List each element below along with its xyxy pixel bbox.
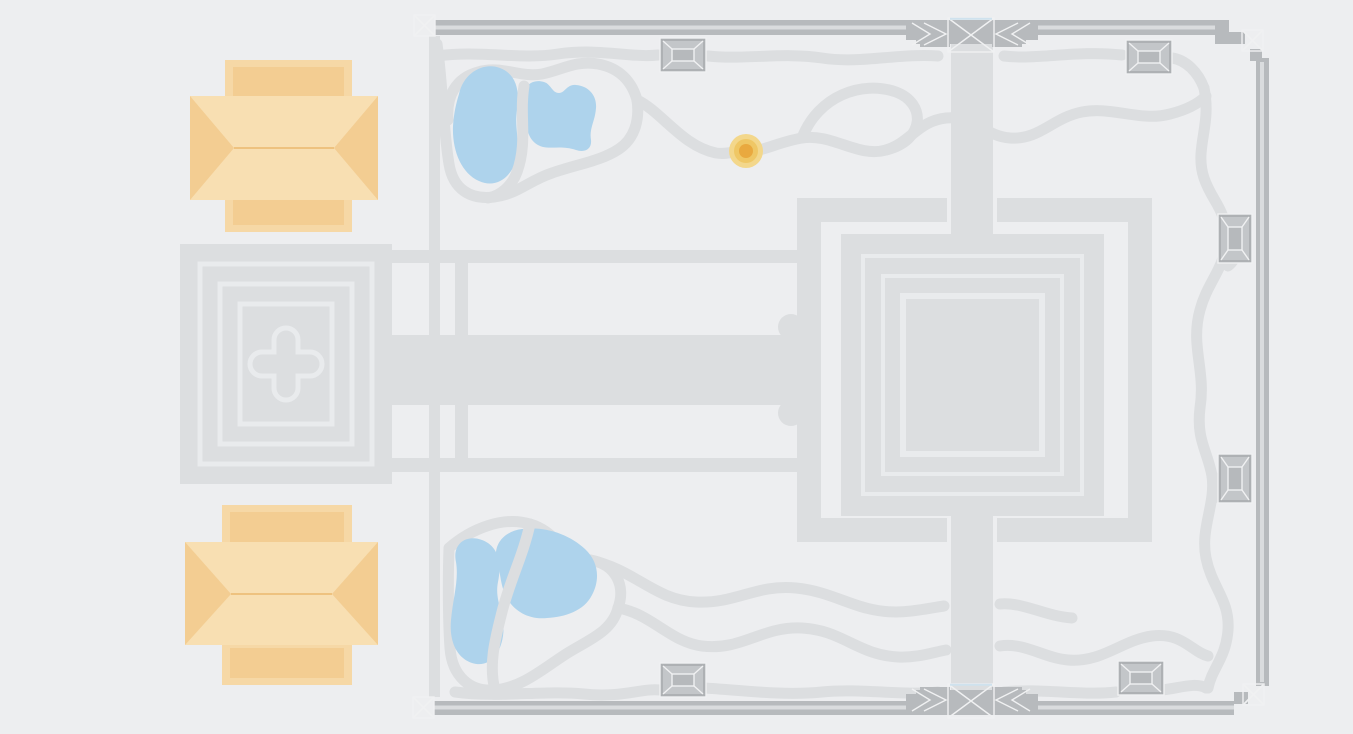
north-wall-step xyxy=(1215,20,1229,44)
corner-gate-southwest xyxy=(413,697,434,718)
gallery-east-arm xyxy=(1128,198,1152,542)
east-wall-north-tower xyxy=(1218,214,1252,263)
site-map xyxy=(0,0,1353,734)
gate-step-west xyxy=(906,24,918,40)
west-sanctuary-base xyxy=(180,244,392,484)
corner-gate-northeast xyxy=(1242,30,1263,51)
central-sanctuary xyxy=(797,198,1152,542)
pavilion-north xyxy=(190,60,378,232)
pavilion-south-wing-roof xyxy=(230,512,344,546)
shrine-northwest xyxy=(660,38,706,72)
terrace-cross-band xyxy=(455,250,468,472)
location-marker[interactable] xyxy=(729,134,763,168)
marker-core xyxy=(739,144,753,158)
pond-nw-lobed xyxy=(523,81,596,151)
gallery-west-arm xyxy=(797,198,821,542)
terrace-south-rail xyxy=(392,458,798,472)
east-wall-stripe xyxy=(1260,62,1264,682)
pavilion-south-wing-roof xyxy=(230,648,344,678)
east-wall-towers xyxy=(1218,214,1252,503)
cruciform-terrace xyxy=(392,250,804,472)
west-wall-path xyxy=(429,36,440,697)
east-wall-south-tower xyxy=(1218,454,1252,503)
path-south-wall-hug xyxy=(455,685,1206,695)
pavilion-south xyxy=(185,505,378,685)
shrine-southeast xyxy=(1118,661,1164,695)
path-east-meander xyxy=(1197,88,1229,688)
terrace-north-rail xyxy=(392,250,798,263)
terrace-causeway xyxy=(392,335,798,405)
shrine-northeast xyxy=(1126,40,1172,74)
west-sanctuary xyxy=(180,244,392,484)
gate-step-east xyxy=(1026,24,1038,40)
north-wall-stripe xyxy=(435,26,1215,30)
shrine-southwest xyxy=(660,663,706,697)
corner-gate-northwest xyxy=(414,15,435,36)
gate-step-west xyxy=(906,694,918,710)
path-south-meander-short xyxy=(590,560,1072,618)
south-wall-stripe xyxy=(434,706,1234,710)
gate-step-east xyxy=(1026,694,1038,710)
